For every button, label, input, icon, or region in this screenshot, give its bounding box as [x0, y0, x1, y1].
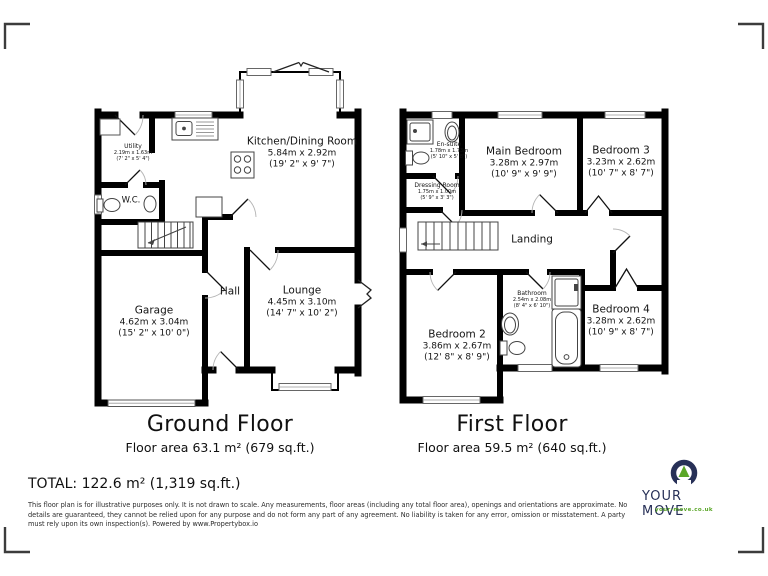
ground-floor-title: Ground Floor	[147, 412, 293, 437]
gf-garage-door	[108, 400, 195, 407]
ground-floor-area: Floor area 63.1 m² (679 sq.ft.)	[126, 440, 315, 455]
disclaimer-text: This floor plan is for illustrative purp…	[28, 501, 628, 530]
ground-floor-plan	[95, 63, 372, 407]
room-label-dressing-room: Dressing Room 1.75m x 1.00m (5' 9" x 3' …	[414, 183, 459, 201]
room-label-hall: Hall	[220, 285, 240, 298]
first-floor-area: Floor area 59.5 m² (640 sq.ft.)	[418, 440, 607, 455]
your-move-wordmark: YOUR MOVE	[642, 489, 726, 519]
room-label-wc: W.C.	[122, 196, 141, 207]
gf-utility-unit	[100, 119, 120, 135]
gf-cupboard	[196, 197, 222, 217]
room-label-ensuite: En-suite 1.78m x 1.73m (5' 10" x 5' 8")	[430, 142, 468, 160]
room-label-bedroom2: Bedroom 2 3.86m x 2.67m (12' 8" x 8' 9")	[423, 328, 492, 363]
room-label-lounge: Lounge 4.45m x 3.10m (14' 7" x 10' 2")	[266, 284, 337, 319]
gf-kitchen-bay-window	[237, 63, 344, 113]
room-label-bathroom: Bathroom 2.54m x 2.08m (8' 4" x 6' 10")	[513, 291, 551, 309]
room-label-bedroom4: Bedroom 4 3.28m x 2.62m (10' 9" x 8' 7")	[587, 303, 656, 338]
your-move-logo-icon	[674, 463, 695, 488]
room-label-utility: Utility 2.19m x 1.63m (7' 2" x 5' 4")	[114, 144, 152, 162]
gf-stairs	[138, 222, 193, 248]
gf-front-door	[358, 280, 371, 308]
room-label-kitchen: Kitchen/Dining Room 5.84m x 2.92m (19' 2…	[247, 135, 357, 170]
your-move-url: your-move.co.uk	[655, 507, 713, 513]
total-area-label: TOTAL: 122.6 m² (1,319 sq.ft.)	[28, 476, 241, 492]
room-label-garage: Garage 4.62m x 3.04m (15' 2" x 10' 0")	[118, 304, 189, 339]
room-label-bedroom3: Bedroom 3 3.23m x 2.62m (10' 7" x 8' 7")	[587, 144, 656, 179]
first-floor-title: First Floor	[456, 412, 567, 437]
gf-lounge-bay-window	[272, 370, 338, 391]
ff-stairs	[418, 222, 498, 250]
floorplan-page: Utility 2.19m x 1.63m (7' 2" x 5' 4") W.…	[0, 0, 768, 576]
room-label-landing: Landing	[511, 233, 553, 246]
room-label-main-bedroom: Main Bedroom 3.28m x 2.97m (10' 9" x 9' …	[486, 145, 562, 180]
gf-kitchen-sink	[172, 118, 218, 140]
